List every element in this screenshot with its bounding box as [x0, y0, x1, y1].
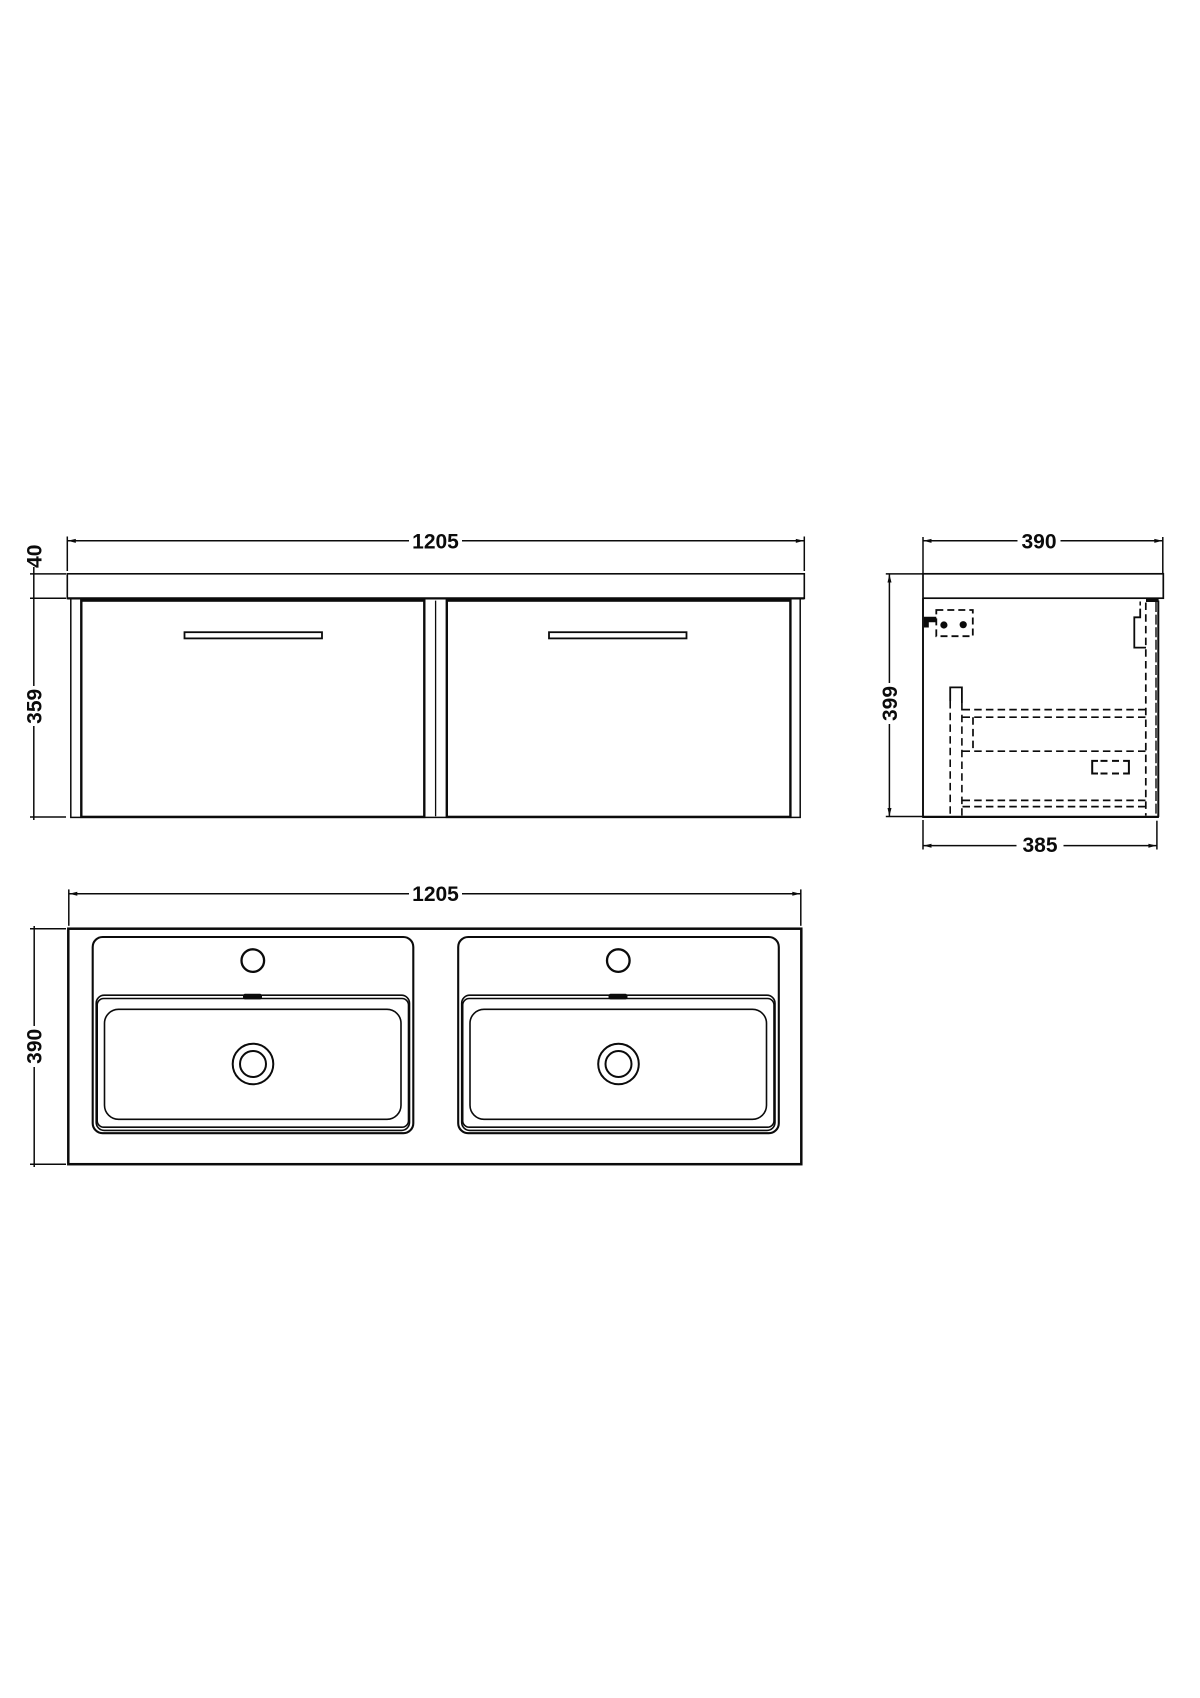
- svg-text:1205: 1205: [412, 883, 459, 906]
- svg-text:1205: 1205: [412, 530, 459, 553]
- svg-text:390: 390: [1021, 530, 1056, 553]
- svg-text:399: 399: [879, 686, 902, 721]
- svg-text:390: 390: [24, 1029, 47, 1064]
- svg-text:359: 359: [23, 689, 46, 724]
- svg-text:40: 40: [23, 545, 46, 568]
- svg-text:385: 385: [1022, 834, 1057, 857]
